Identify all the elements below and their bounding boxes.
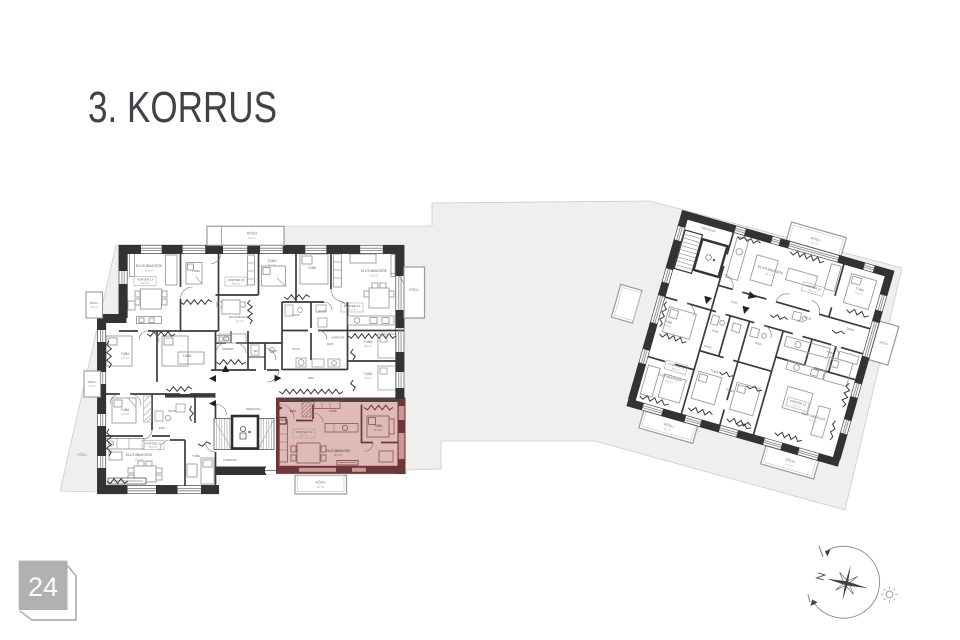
svg-text:TUBA: TUBA — [192, 269, 200, 273]
svg-text:WC: WC — [254, 349, 259, 353]
svg-text:TUBA: TUBA — [192, 454, 200, 458]
svg-text:KORIDOR: KORIDOR — [332, 336, 344, 340]
svg-text:55,2 m²: 55,2 m² — [348, 308, 356, 311]
svg-text:SAUN: SAUN — [318, 309, 325, 313]
svg-text:TREPIKODA: TREPIKODA — [246, 407, 261, 411]
svg-text:10,2 m²: 10,2 m² — [364, 345, 372, 348]
svg-text:TUBA: TUBA — [121, 352, 130, 356]
svg-text:KORIDOR: KORIDOR — [223, 458, 236, 462]
svg-text:ELUTUBA/KÖÖK: ELUTUBA/KÖÖK — [136, 264, 163, 268]
svg-text:RÕDU: RÕDU — [409, 287, 419, 292]
svg-text:TUBA: TUBA — [364, 372, 373, 376]
svg-text:4,6 m²: 4,6 m² — [89, 385, 96, 388]
svg-text:TUBA: TUBA — [121, 408, 130, 412]
svg-text:22,4 m²: 22,4 m² — [236, 320, 244, 323]
svg-text:ELUTUBA/KÖÖK: ELUTUBA/KÖÖK — [361, 269, 388, 273]
svg-text:23,8 m²: 23,8 m² — [370, 274, 378, 277]
svg-text:RÕDU: RÕDU — [88, 379, 97, 384]
svg-text:TUBA: TUBA — [374, 424, 383, 428]
svg-text:5,9 m²: 5,9 m² — [248, 236, 255, 240]
svg-text:11,8 m²: 11,8 m² — [374, 429, 382, 432]
svg-text:ELUTUBA/KÖÖK: ELUTUBA/KÖÖK — [229, 315, 251, 319]
svg-text:12,9 m²: 12,9 m² — [121, 413, 129, 416]
svg-text:RÕDU: RÕDU — [90, 300, 99, 305]
svg-text:ESIK: ESIK — [290, 409, 297, 413]
svg-text:RÕDU: RÕDU — [247, 231, 258, 236]
svg-text:11,2 m²: 11,2 m² — [268, 264, 276, 267]
svg-text:TUBA: TUBA — [267, 259, 277, 263]
svg-text:10,4 m²: 10,4 m² — [364, 377, 372, 380]
svg-text:55,2 m²: 55,2 m² — [300, 434, 308, 437]
svg-text:ELUTUBA/KÖÖK: ELUTUBA/KÖÖK — [126, 453, 153, 457]
svg-text:55,2 m²: 55,2 m² — [149, 446, 157, 449]
svg-text:12,1 m²: 12,1 m² — [121, 357, 129, 360]
svg-text:4,6 m²: 4,6 m² — [91, 306, 98, 309]
svg-text:ESIK: ESIK — [159, 426, 165, 430]
svg-text:WC/D: WC/D — [271, 349, 278, 353]
svg-text:WC/D: WC/D — [293, 313, 300, 317]
svg-text:24: 24 — [28, 572, 58, 602]
svg-text:55,2 m²: 55,2 m² — [232, 282, 240, 285]
svg-text:KÖÖK: KÖÖK — [329, 409, 337, 413]
svg-text:ESIK: ESIK — [308, 376, 315, 380]
svg-text:KORTER 14: KORTER 14 — [344, 304, 361, 308]
svg-text:8,7 m²: 8,7 m² — [317, 485, 324, 489]
svg-text:24,5 m²: 24,5 m² — [145, 269, 153, 272]
svg-text:KORTER 15: KORTER 15 — [228, 278, 245, 282]
svg-text:KORTER 11: KORTER 11 — [145, 442, 162, 446]
svg-text:WC/P: WC/P — [327, 342, 334, 346]
svg-text:26,2 m²: 26,2 m² — [135, 458, 143, 461]
svg-text:WC/D: WC/D — [168, 409, 175, 413]
svg-text:WC/D: WC/D — [293, 347, 300, 351]
svg-text:TUBA: TUBA — [364, 340, 373, 344]
svg-text:TUBA: TUBA — [308, 266, 317, 270]
svg-text:RÕDU: RÕDU — [316, 480, 327, 485]
svg-text:55,2 m²: 55,2 m² — [141, 282, 149, 285]
svg-text:KORTER 12: KORTER 12 — [296, 430, 313, 434]
svg-text:KORTER 13: KORTER 13 — [137, 278, 154, 282]
svg-text:PANIPAIK: PANIPAIK — [222, 347, 234, 351]
svg-text:21,6 m²: 21,6 m² — [334, 454, 342, 457]
svg-text:ELUTUBA/KÖÖK: ELUTUBA/KÖÖK — [326, 449, 352, 453]
svg-text:TUBA: TUBA — [183, 354, 192, 358]
svg-text:RÕDU: RÕDU — [77, 452, 87, 457]
